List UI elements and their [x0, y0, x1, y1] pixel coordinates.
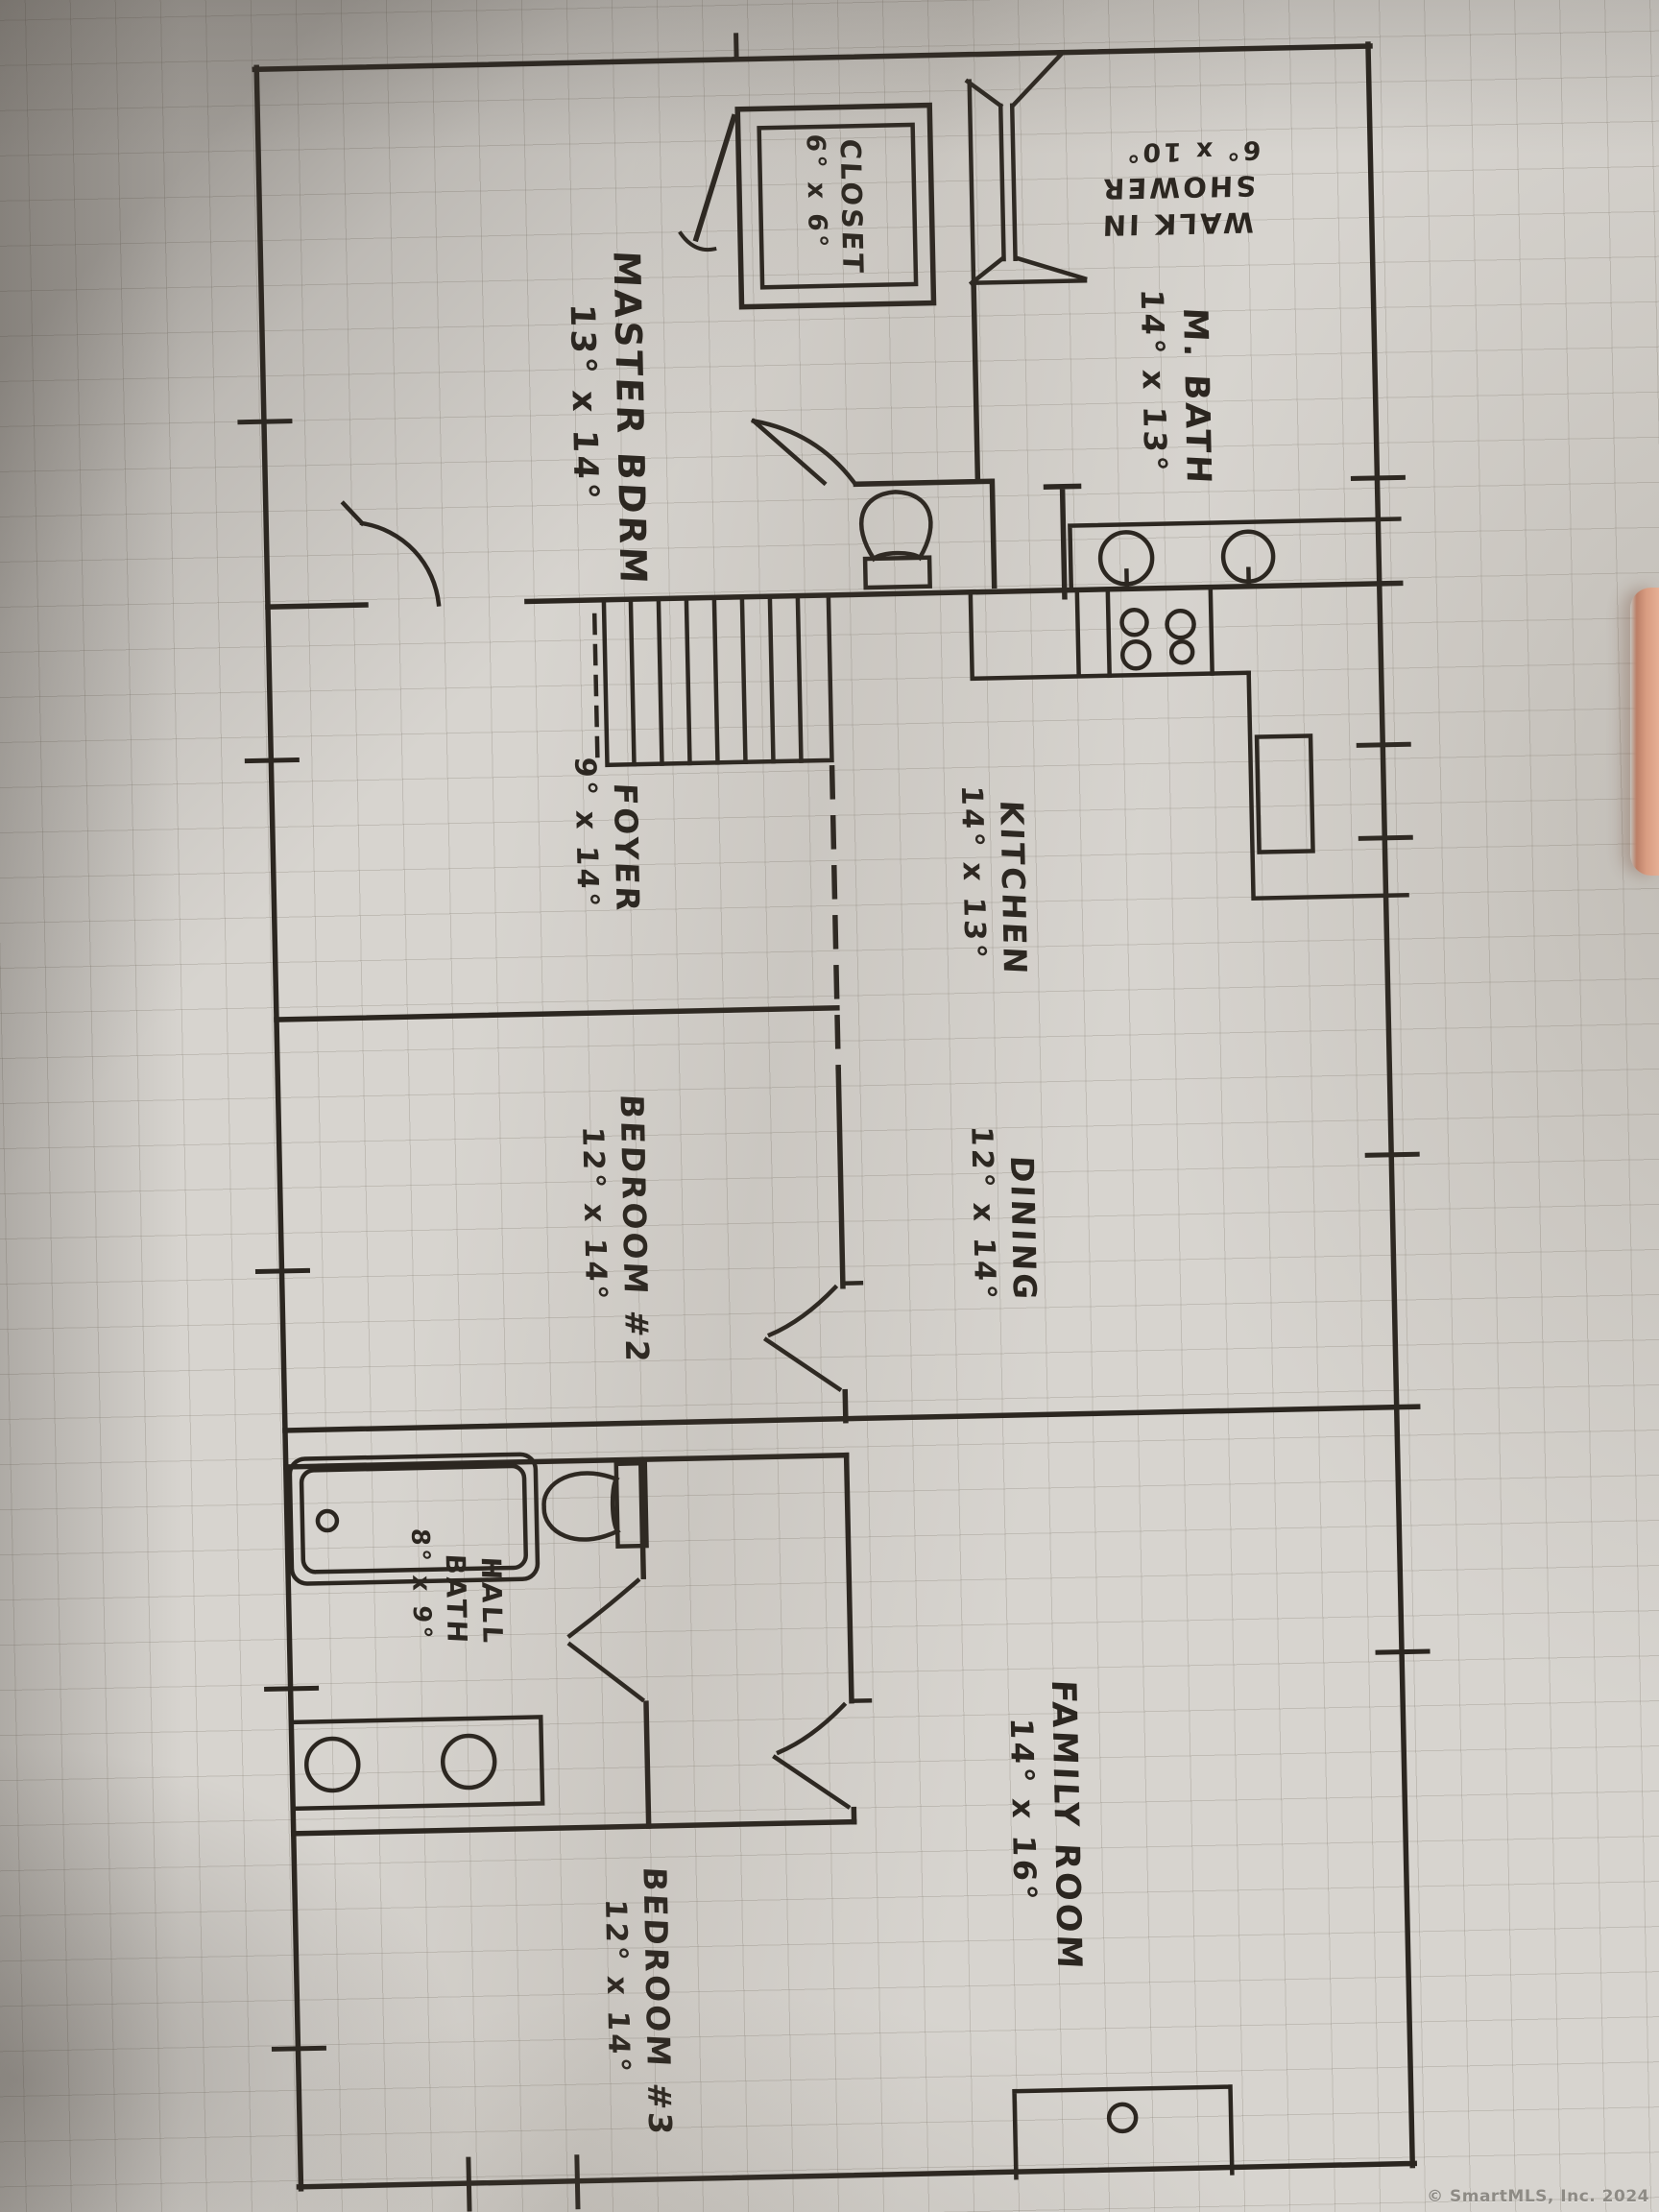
floor-plan-drawing: [0, 0, 1659, 2212]
door-arc: [568, 1580, 638, 1635]
master-bedroom-door: [344, 501, 439, 606]
room-label-family-room: FAMILY ROOM 14° x 16°: [999, 1677, 1091, 1973]
room-label-master-bedroom: MASTER BDRM 13° x 14°: [558, 248, 658, 588]
room-label-hall-bath: HALL BATH 8° x 9°: [403, 1541, 509, 1658]
toilet-fixture-hall: [543, 1463, 647, 1548]
door-arc: [362, 521, 439, 606]
bedroom-2-door: [765, 1283, 863, 1390]
room-label-closet: CLOSET 6° x 6°: [798, 136, 872, 276]
room-label-master-bath: M. BATH 14° x 13°: [1131, 301, 1220, 490]
door-leaf: [344, 503, 362, 523]
room-label-foyer: FOYER 9° x 14°: [565, 770, 649, 926]
fingertip-at-edge: [1630, 588, 1659, 876]
floor-plan-photo: MASTER BDRM 13° x 14° CLOSET 6° x 6° WAL…: [0, 0, 1659, 2212]
outer-walls: [254, 44, 1414, 2189]
closet-door-leaf: [693, 117, 736, 239]
room-label-dining: DINING 12° x 14°: [962, 1139, 1046, 1318]
room-label-walk-in-shower: WALK IN SHOWER 6° x 10°: [1098, 133, 1257, 244]
door-leaf: [766, 1338, 839, 1391]
door-arc: [754, 419, 854, 484]
room-label-kitchen: KITCHEN 14° x 13°: [951, 798, 1036, 977]
door-arc: [778, 1705, 845, 1752]
door-leaf: [775, 1756, 848, 1809]
floor-plan: MASTER BDRM 13° x 14° CLOSET 6° x 6° WAL…: [0, 0, 1659, 2212]
walk-in-shower-stall: [967, 54, 1085, 282]
bedroom-3-door: [774, 1700, 872, 1808]
master-vanity-sinks: [1070, 518, 1400, 589]
room-label-bedroom-2: BEDROOM #2 12° x 14°: [572, 1092, 659, 1366]
door-arc: [769, 1287, 836, 1334]
stove-burners: [1121, 609, 1194, 669]
stairs: [594, 597, 832, 765]
door-leaf: [570, 1643, 642, 1701]
hall-bath-door: [568, 1580, 642, 1701]
hall-vanity-sinks: [293, 1717, 542, 1808]
refrigerator: [1257, 735, 1313, 852]
watermark: © SmartMLS, Inc. 2024: [1427, 2187, 1649, 2206]
master-bath-door: [754, 419, 854, 484]
toilet-fixture-master: [861, 492, 932, 588]
kitchen-counter: [971, 583, 1407, 903]
graph-paper: MASTER BDRM 13° x 14° CLOSET 6° x 6° WAL…: [0, 0, 1659, 2212]
fireplace: [1015, 2086, 1233, 2177]
window-ticks: [232, 21, 1439, 2212]
room-label-bedroom-3: BEDROOM #3 12° x 14°: [595, 1864, 682, 2139]
